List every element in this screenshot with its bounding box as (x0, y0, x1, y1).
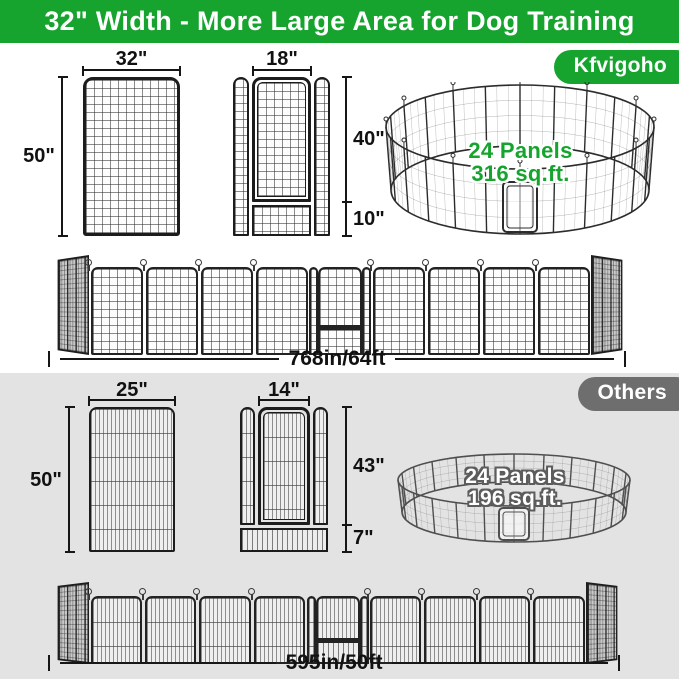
door-width-dimension-line (259, 399, 309, 401)
door-panel-right-strip (314, 77, 330, 236)
door-frame (252, 77, 311, 202)
door-height-dimension-line (345, 77, 347, 236)
others-badge: Others (578, 377, 679, 411)
row-panel (201, 267, 253, 355)
door-height-label: 43" (353, 455, 385, 478)
dimension-segment (395, 358, 614, 360)
door-panel-diagram (233, 77, 330, 236)
dimension-mid-tick (342, 524, 352, 526)
panel-width-dimension-line (89, 399, 175, 401)
dimension-segment (392, 662, 608, 664)
panel-diagram (83, 77, 180, 236)
row-total-dimension: 768in/64ft (48, 347, 626, 371)
product-comparison-infographic: 32" Width - More Large Area for Dog Trai… (0, 0, 679, 679)
others-section: Others 25" 50" 14" 43" 7" 24 Panels 196 … (0, 373, 679, 679)
door-panel-right-strip (313, 407, 328, 525)
brand-badge: Kfvigoho (554, 50, 679, 84)
dimension-segment (60, 662, 276, 664)
banner-title: 32" Width - More Large Area for Dog Trai… (44, 6, 634, 37)
door-bottom-height-label: 10" (353, 208, 385, 231)
door-frame (258, 407, 310, 525)
row-door-unit (309, 267, 371, 355)
row-panel (538, 267, 590, 355)
panel-height-label: 50" (20, 145, 58, 168)
door-bottom-section (252, 205, 311, 236)
row-total-label: 595in/50ft (286, 651, 383, 675)
row-panel (146, 267, 198, 355)
header-banner: 32" Width - More Large Area for Dog Trai… (0, 0, 679, 43)
door-mesh (263, 412, 305, 520)
panel-height-label: 50" (27, 469, 65, 492)
row-door (316, 596, 360, 640)
pen-illustration (395, 450, 635, 550)
pen-illustration (383, 82, 658, 240)
door-panel-left-strip (240, 407, 255, 525)
dimension-mid-tick (342, 201, 352, 203)
row-panel (483, 267, 535, 355)
row-panel (428, 267, 480, 355)
door-bottom-height-label: 7" (353, 527, 374, 550)
door-height-label: 40" (353, 128, 385, 151)
door-mesh (257, 82, 306, 197)
row-door-strip (362, 267, 371, 355)
row-door (318, 267, 362, 327)
row-total-dimension: 595in/50ft (48, 651, 620, 675)
kfvigoho-section: Kfvigoho 32" 50" 18" 40" 10" 24 Panels 3… (0, 43, 679, 373)
panel-width-dimension-line (83, 69, 180, 71)
door-width-dimension-line (253, 69, 311, 71)
row-panel (91, 267, 143, 355)
door-bottom-section (240, 528, 328, 552)
panel-height-dimension-line (68, 407, 70, 552)
panel-diagram (89, 407, 175, 552)
row-panel (373, 267, 425, 355)
row-panel (256, 267, 308, 355)
row-door-strip (309, 267, 318, 355)
door-panel-diagram (240, 407, 328, 552)
door-width-label: 18" (253, 48, 311, 71)
row-end-panels-right (591, 255, 622, 355)
door-panel-left-strip (233, 77, 249, 236)
panel-height-dimension-line (61, 77, 63, 236)
door-height-dimension-line (345, 407, 347, 552)
row-end-panels-left (58, 255, 89, 355)
row-total-label: 768in/64ft (289, 347, 386, 371)
panel-width-label: 32" (83, 48, 180, 71)
dimension-segment (60, 358, 279, 360)
panel-row (45, 255, 635, 355)
